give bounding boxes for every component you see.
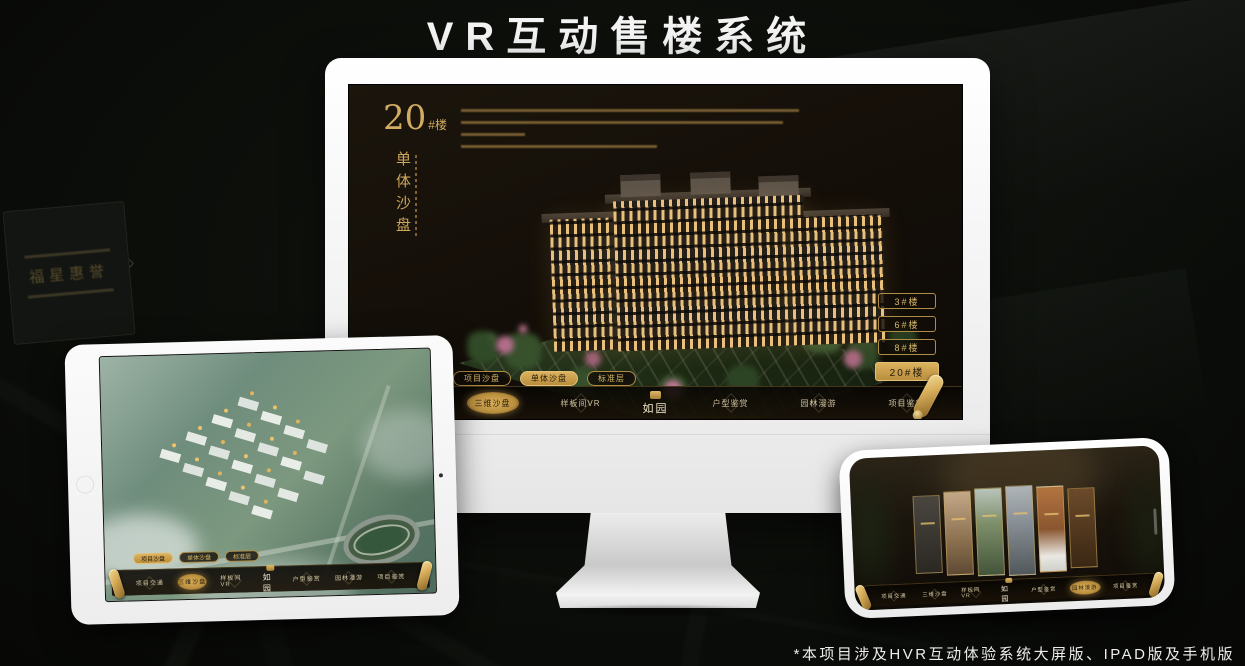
- vertical-caption-decoration: [415, 155, 417, 239]
- nav-item-unit-gallery[interactable]: 户型鉴赏: [705, 392, 757, 414]
- penthouse-cap: [620, 174, 661, 197]
- building-number: 20: [383, 98, 426, 138]
- nav-item-3d-sandtable[interactable]: 三维沙盘: [919, 586, 951, 601]
- seal-icon: [1006, 577, 1013, 582]
- plaque-small-text-blur: [24, 248, 110, 258]
- ruyuan-logo[interactable]: 如园: [643, 391, 669, 416]
- page-title: VR互动售楼系统: [0, 4, 1245, 62]
- cloud-decoration: [361, 408, 437, 480]
- seal-icon: [266, 565, 274, 571]
- nav-item-showroom-vr[interactable]: 样板间VR: [220, 572, 249, 589]
- nav-item-unit-gallery[interactable]: 户型鉴赏: [1028, 581, 1060, 596]
- aerial-building-blocks: [159, 449, 181, 463]
- tab-single-sandtable[interactable]: 单体沙盘: [520, 371, 578, 386]
- floor-button-8[interactable]: 8#楼: [878, 339, 936, 355]
- tab-standard-floor[interactable]: 标准层: [225, 550, 259, 562]
- ruyuan-logo[interactable]: 如园: [1000, 577, 1019, 604]
- plaque-brand-text: 福星惠誉: [28, 259, 110, 287]
- nav-item-garden-roam[interactable]: 园林漫游: [793, 392, 845, 414]
- scene-panel-building[interactable]: [1005, 485, 1036, 576]
- plaque-small-text-blur: [28, 288, 114, 298]
- floor-selector: 3#楼 6#楼 8#楼 20#楼: [875, 293, 939, 381]
- tablet-screen: 项目沙盘 单体沙盘 标准层 项目交通 三维沙盘 样板间VR 如园 户型鉴赏 园林…: [99, 348, 437, 603]
- scene-panel-carousel: [912, 482, 1098, 580]
- tab-standard-floor[interactable]: 标准层: [587, 371, 636, 386]
- building-unit: #楼: [428, 118, 447, 132]
- building-number-badges: [172, 443, 177, 448]
- nav-item-3d-sandtable[interactable]: 三维沙盘: [178, 573, 207, 590]
- stage: 福星惠誉 › VR互动售楼系统 20#楼 单体沙盘: [0, 0, 1245, 666]
- scene-panel-autumn[interactable]: [1036, 486, 1067, 573]
- background-award-plaque: 福星惠誉: [2, 201, 135, 345]
- phone-mockup: 项目交通 三维沙盘 样板间VR 如园 户型鉴赏 园林漫游 项目鉴赏: [838, 437, 1175, 619]
- floor-button-6[interactable]: 6#楼: [878, 316, 936, 332]
- building-wing-right: [790, 214, 886, 345]
- text-line-blur: [461, 133, 525, 136]
- nav-item-garden-roam[interactable]: 园林漫游: [335, 569, 364, 586]
- tab-single-sandtable[interactable]: 单体沙盘: [179, 551, 219, 563]
- ruyuan-logo[interactable]: 如园: [262, 565, 279, 594]
- nav-item-project-gallery[interactable]: 项目鉴赏: [377, 568, 406, 585]
- residential-building-model: [504, 165, 870, 347]
- sandtable-tabs: 项目沙盘 单体沙盘 标准层: [453, 371, 636, 386]
- scroll-decoration-icon: [416, 560, 433, 592]
- building-block-mid: [613, 195, 808, 352]
- nav-item-garden-roam[interactable]: 园林漫游: [1069, 579, 1101, 594]
- nav-item-3d-sandtable[interactable]: 三维沙盘: [467, 392, 519, 414]
- tablet-home-button[interactable]: [76, 475, 94, 493]
- nav-item-project-gallery[interactable]: 项目鉴赏: [1110, 578, 1142, 593]
- floor-button-3[interactable]: 3#楼: [878, 293, 936, 309]
- nav-item-unit-gallery[interactable]: 户型鉴赏: [292, 570, 321, 587]
- nav-item-showroom-vr[interactable]: 样板间VR: [555, 392, 607, 414]
- nav-item-traffic[interactable]: 项目交通: [135, 574, 164, 591]
- text-line-blur: [461, 109, 799, 112]
- vertical-section-title: 单体沙盘: [393, 151, 414, 239]
- penthouse-cap: [690, 171, 731, 194]
- phone-screen: 项目交通 三维沙盘 样板间VR 如园 户型鉴赏 园林漫游 项目鉴赏: [849, 445, 1165, 610]
- tree-foliage: [489, 333, 497, 341]
- scene-panel-kitchen[interactable]: [943, 491, 974, 576]
- text-line-blur: [461, 121, 783, 124]
- tablet-mockup: 项目沙盘 单体沙盘 标准层 项目交通 三维沙盘 样板间VR 如园 户型鉴赏 园林…: [64, 335, 459, 625]
- footnote: *本项目涉及HVR互动体验系统大屏版、IPAD版及手机版: [794, 643, 1235, 664]
- scene-panel-cabinet[interactable]: [1067, 487, 1097, 568]
- nav-item-showroom-vr[interactable]: 样板间VR: [960, 584, 992, 599]
- tab-project-sandtable[interactable]: 项目沙盘: [133, 552, 173, 564]
- scene-panel-interior[interactable]: [913, 495, 943, 574]
- monitor-shadow: [545, 604, 775, 618]
- seal-icon: [650, 391, 661, 399]
- tab-project-sandtable[interactable]: 项目沙盘: [453, 371, 511, 386]
- tablet-camera-icon: [439, 473, 443, 477]
- nav-item-traffic[interactable]: 项目交通: [878, 588, 910, 603]
- scene-panel-garden[interactable]: [974, 487, 1005, 576]
- building-headline: 20#楼: [383, 101, 447, 135]
- chevron-right-icon: ›: [128, 252, 135, 275]
